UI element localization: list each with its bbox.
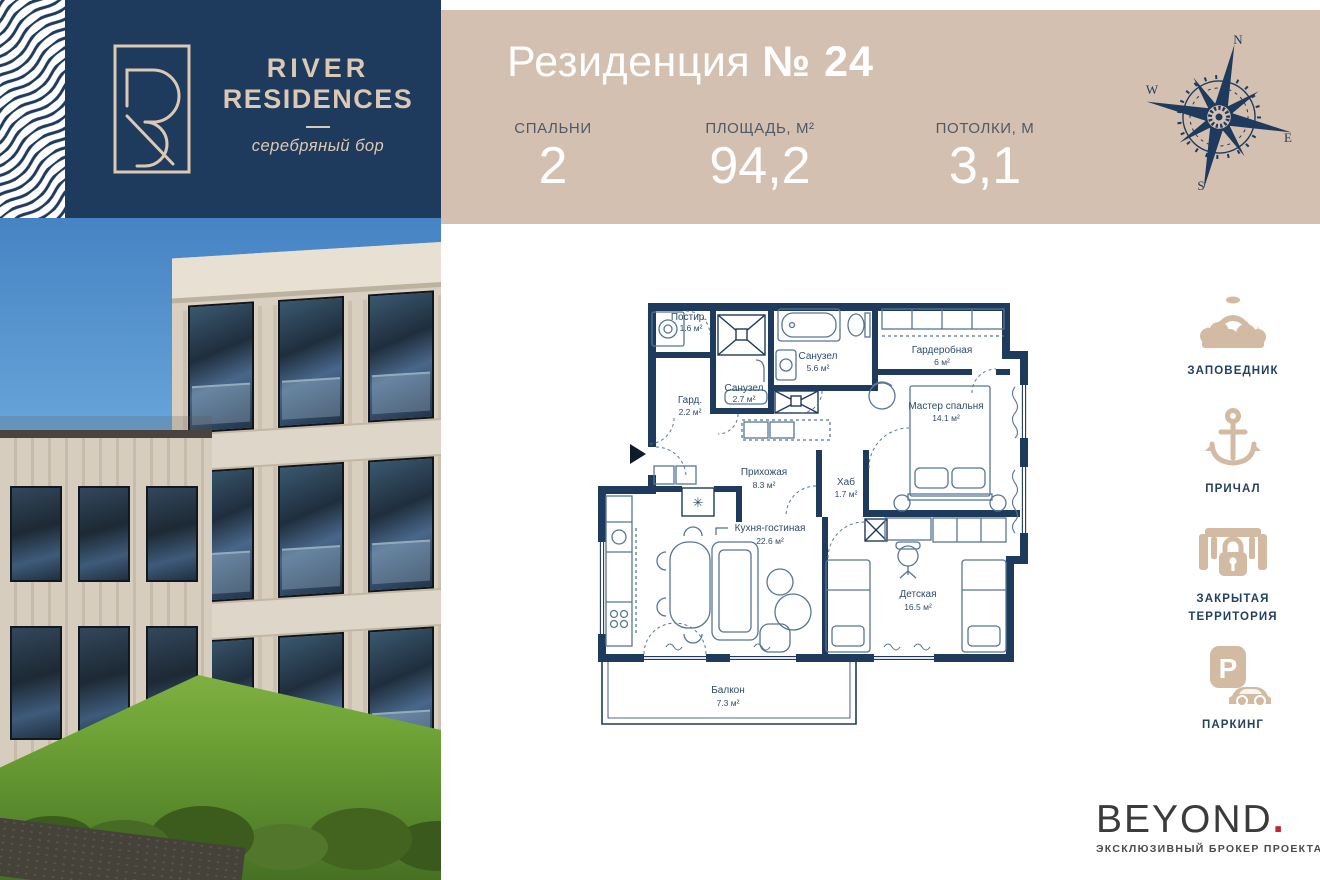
room-label: Санузел	[799, 351, 838, 362]
room-area: 14.1 м²	[932, 413, 960, 423]
stat-bedrooms: СПАЛЬНИ 2	[473, 120, 633, 193]
brand-wordmark: RIVER RESIDENCES серебряный бор	[211, 54, 425, 156]
room-area: 8.3 м²	[753, 480, 776, 490]
room-label: Гардеробная	[912, 344, 973, 356]
broker-tagline: ЭКСКЛЮЗИВНЫЙ БРОКЕР ПРОЕКТА	[1096, 843, 1306, 855]
stat-area: ПЛОЩАДЬ, М² 94,2	[660, 120, 860, 193]
plan-windows	[598, 385, 1028, 662]
stat-ceilings: ПОТОЛКИ, М 3,1	[895, 120, 1075, 193]
svg-text:✳: ✳	[693, 495, 704, 510]
room-area: 22.6 м²	[756, 536, 784, 546]
stat-value: 3,1	[895, 140, 1075, 193]
unit-title-word: Резиденция	[507, 38, 750, 86]
room-label: Мастер спальня	[908, 401, 983, 412]
room-label: Постир.	[671, 312, 707, 323]
anchor-icon	[1202, 406, 1264, 470]
stat-label: ПОТОЛКИ, М	[895, 120, 1075, 137]
label-leader-line	[716, 528, 728, 535]
room-label: Гард.	[678, 395, 702, 406]
stat-value: 94,2	[660, 140, 860, 193]
amenity-closed-territory: ЗАКРЫТАЯ ТЕРРИТОРИЯ	[1153, 522, 1313, 627]
room-label: Хаб	[837, 476, 855, 488]
amenity-label: ПАРКИНГ	[1153, 716, 1313, 734]
brand-panel: RIVER RESIDENCES серебряный бор	[65, 0, 441, 218]
room-label: Санузел	[725, 383, 764, 394]
compass-south-label: S	[1197, 178, 1204, 193]
amenity-label: ЗАКРЫТАЯ ТЕРРИТОРИЯ	[1153, 590, 1313, 627]
room-area: 1.6 м²	[680, 323, 703, 333]
room-area: 2.2 м²	[679, 407, 702, 417]
stat-label: СПАЛЬНИ	[473, 120, 633, 137]
room-area: 16.5 м²	[904, 602, 932, 612]
plan-vent-box: ✳	[682, 488, 714, 516]
entrance-arrow-icon	[630, 444, 646, 464]
amenity-nature-reserve: ЗАПОВЕДНИК	[1153, 290, 1313, 380]
compass-west-label: W	[1146, 82, 1159, 97]
page-title: Резиденция№ 24	[507, 38, 874, 87]
compass-east-label: E	[1284, 130, 1292, 145]
room-label: Кухня-гостиная	[735, 523, 806, 534]
river-residences-monogram-icon	[113, 44, 191, 174]
floor-plan: ✳ Постир. 1.6 м² Санузел 2.7 м² Гард. 2.…	[578, 290, 1048, 742]
brand-line1: RIVER	[211, 54, 425, 84]
room-label: Детская	[899, 589, 936, 600]
broker-logo: BEYOND. ЭКСКЛЮЗИВНЫЙ БРОКЕР ПРОЕКТА	[1096, 800, 1306, 855]
room-area: 7.3 м²	[717, 698, 740, 708]
plan-shafts	[718, 315, 887, 541]
room-label: Балкон	[711, 685, 745, 696]
parking-icon: P	[1194, 644, 1272, 706]
compass-north-label: N	[1233, 32, 1243, 47]
amenity-label: ЗАПОВЕДНИК	[1153, 362, 1313, 380]
room-area: 5.6 м²	[807, 363, 830, 373]
stat-label: ПЛОЩАДЬ, М²	[660, 120, 860, 137]
building-photo	[0, 218, 441, 880]
room-area: 1.7 м²	[835, 489, 858, 499]
brand-subtitle: серебряный бор	[211, 137, 425, 156]
room-area: 2.7 м²	[733, 394, 756, 404]
compass-rose-icon: N W E S	[1141, 24, 1301, 199]
brand-line2: RESIDENCES	[211, 84, 425, 115]
stat-value: 2	[473, 140, 633, 193]
amenity-pier: ПРИЧАЛ	[1153, 406, 1313, 498]
amenity-parking: P ПАРКИНГ	[1153, 644, 1313, 734]
amenity-label: ПРИЧАЛ	[1153, 480, 1313, 498]
parking-letter: P	[1219, 653, 1238, 684]
room-label: Прихожая	[741, 467, 787, 478]
unit-number: № 24	[762, 38, 874, 86]
broker-dot: .	[1273, 798, 1286, 841]
broker-name: BEYOND.	[1096, 800, 1306, 839]
gate-lock-icon	[1197, 522, 1269, 580]
nature-reserve-icon	[1194, 290, 1272, 352]
brand-divider	[306, 126, 330, 128]
room-area: 6 м²	[934, 357, 950, 367]
info-band: Резиденция№ 24 СПАЛЬНИ 2 ПЛОЩАДЬ, М² 94,…	[441, 10, 1320, 224]
